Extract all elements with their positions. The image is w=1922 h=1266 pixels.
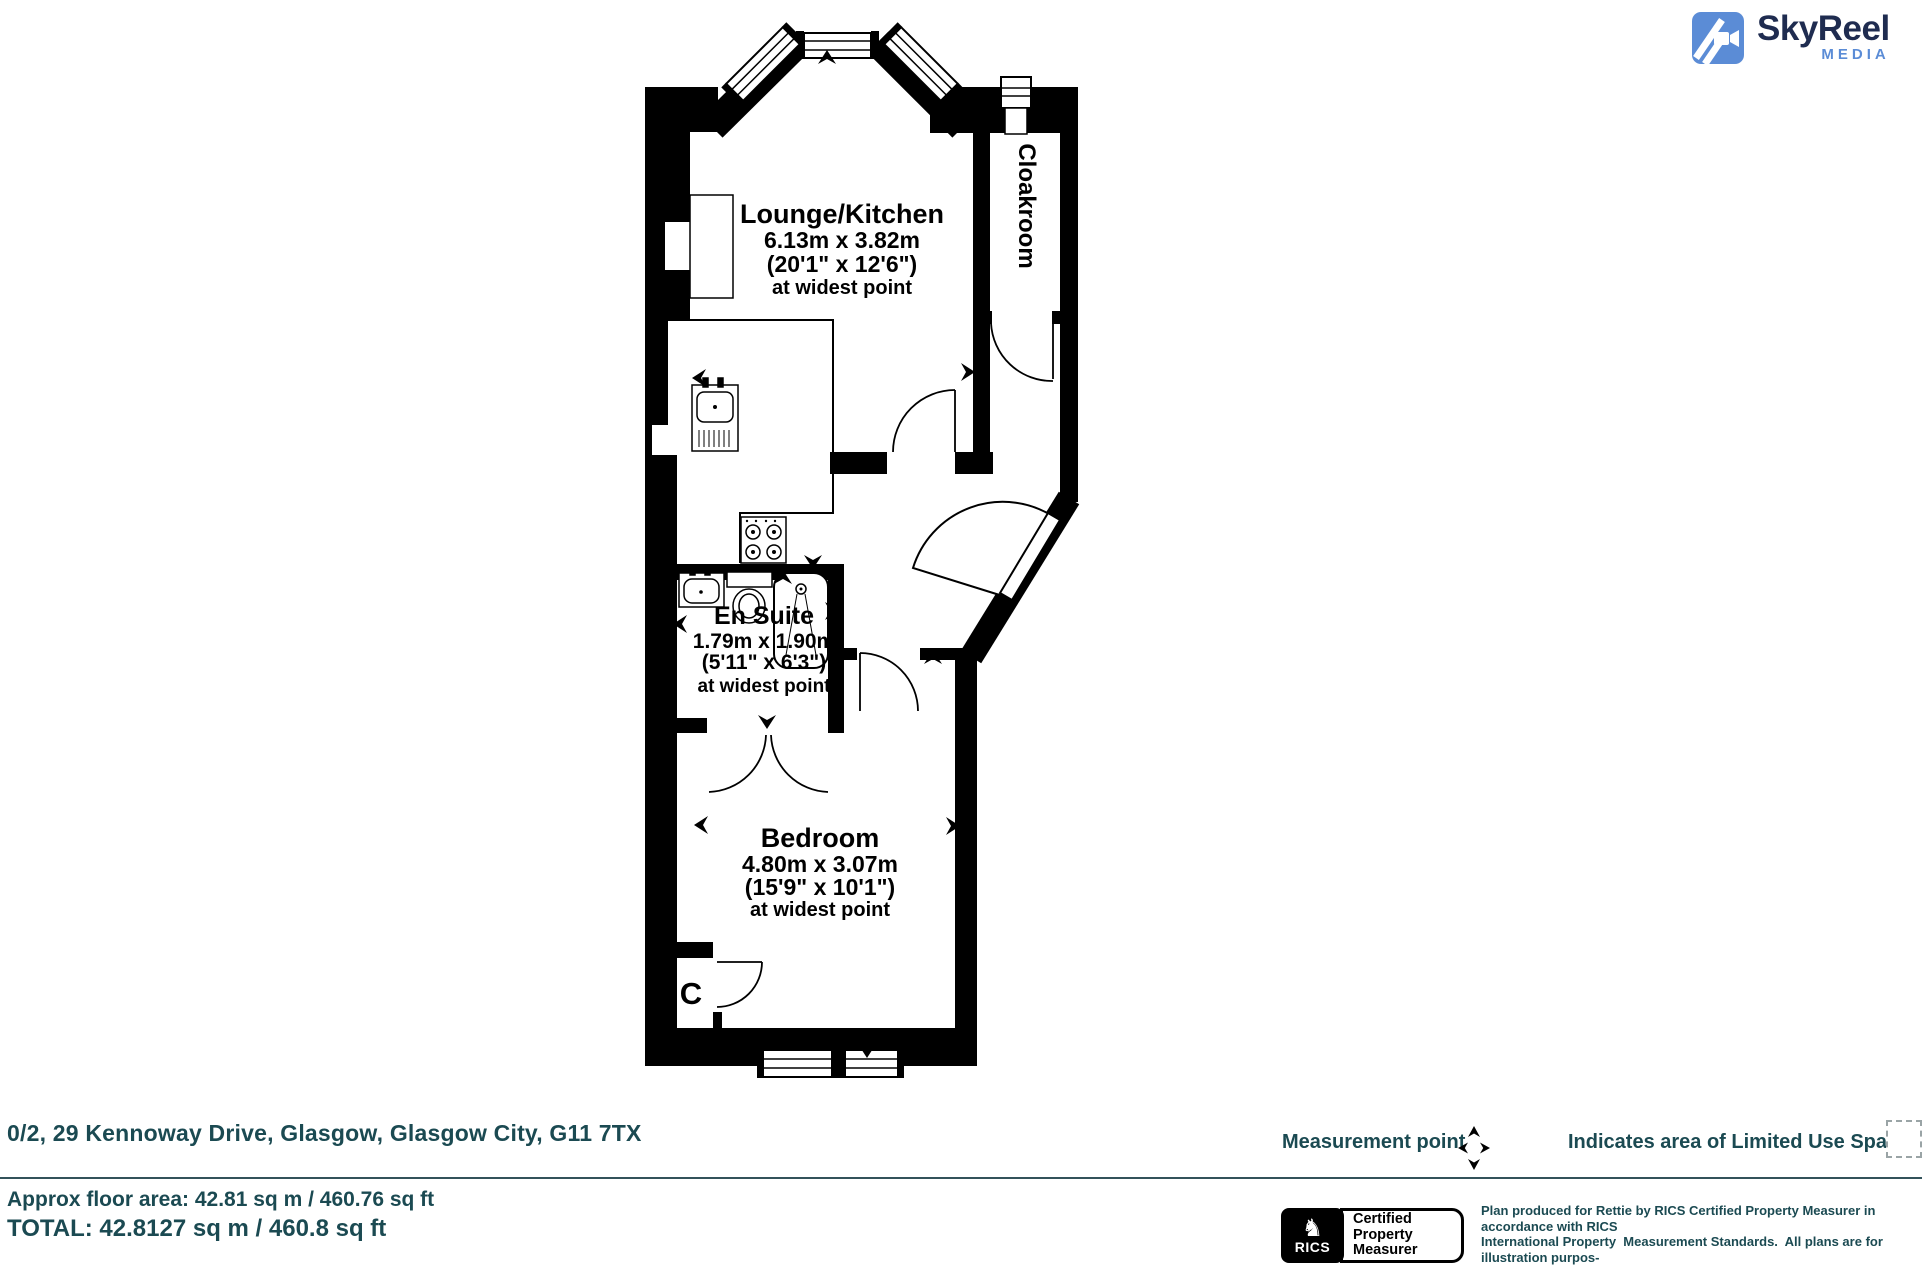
floorplan-page: Lounge/Kitchen 6.13m x 3.82m (20'1" x 12… xyxy=(0,0,1922,1266)
rics-brand: RICS xyxy=(1295,1239,1330,1255)
bedroom-window-left xyxy=(757,1047,845,1078)
door-lounge-hall xyxy=(893,390,955,452)
cert-line: Measurer xyxy=(1353,1243,1461,1259)
four-way-arrow-icon xyxy=(1452,1124,1496,1172)
lounge-furniture xyxy=(690,195,733,298)
bedroom-note: at widest point xyxy=(750,899,890,921)
ensuite-metric: 1.79m x 1.90m xyxy=(693,630,835,653)
cert-line: Property xyxy=(1353,1228,1461,1244)
door-cloakroom xyxy=(991,321,1053,381)
cloakroom-window xyxy=(1001,77,1031,134)
approx-floor-area: Approx floor area: 42.81 sq m / 460.76 s… xyxy=(7,1188,434,1212)
rics-logo: ♞ RICS xyxy=(1281,1208,1344,1263)
bedroom-title: Bedroom xyxy=(761,823,880,853)
bedroom-window-right xyxy=(845,1047,904,1078)
total-floor-area: TOTAL: 42.8127 sq m / 460.8 sq ft xyxy=(7,1215,386,1243)
ensuite-imperial: (5'11" x 6'3") xyxy=(702,651,826,674)
cert-line: Certified xyxy=(1353,1212,1461,1228)
property-address: 0/2, 29 Kennoway Drive, Glasgow, Glasgow… xyxy=(7,1120,642,1147)
ensuite-note: at widest point xyxy=(698,676,832,697)
disclaimer-line: International Property Measurement Stand… xyxy=(1481,1234,1922,1265)
arrow-down-icon xyxy=(758,715,776,729)
rics-lion-icon: ♞ xyxy=(1302,1217,1324,1239)
lounge-kitchen-imperial: (20'1" x 12'6") xyxy=(767,251,917,277)
limited-use-label: Indicates area of Limited Use Space xyxy=(1568,1131,1909,1154)
bay-window-top xyxy=(796,31,879,59)
skyreel-logo: SkyReel MEDIA xyxy=(1692,12,1890,64)
skyreel-tagline: MEDIA xyxy=(1757,47,1890,63)
cupboard-label: C xyxy=(680,976,702,1011)
arrow-right-icon xyxy=(961,363,975,381)
ensuite-title: En Suite xyxy=(714,602,814,630)
skyreel-camera-icon xyxy=(1692,12,1744,64)
skyreel-name: SkyReel xyxy=(1757,12,1890,46)
limited-use-swatch xyxy=(1886,1120,1922,1158)
bedroom-imperial: (15'9" x 10'1") xyxy=(745,874,895,900)
lounge-kitchen-title: Lounge/Kitchen xyxy=(740,199,944,229)
rics-certified-box: Certified Property Measurer xyxy=(1340,1208,1464,1263)
wall-recess xyxy=(665,222,690,270)
measurement-point-label: Measurement point xyxy=(1282,1131,1465,1154)
lounge-kitchen-note: at widest point xyxy=(772,277,912,299)
hob-icon xyxy=(741,517,786,563)
divider-line xyxy=(0,1177,1922,1179)
door-entrance xyxy=(913,502,1060,600)
floor-plan: Lounge/Kitchen 6.13m x 3.82m (20'1" x 12… xyxy=(0,0,1922,1110)
kitchen-sink-icon xyxy=(692,378,738,451)
disclaimer: Plan produced for Rettie by RICS Certifi… xyxy=(1481,1203,1922,1266)
arrow-left-icon xyxy=(694,816,708,834)
disclaimer-line: Plan produced for Rettie by RICS Certifi… xyxy=(1481,1203,1922,1234)
door-ensuite-double xyxy=(709,735,828,792)
door-bedroom xyxy=(860,653,918,711)
cloakroom-title: Cloakroom xyxy=(1013,143,1040,268)
lounge-kitchen-metric: 6.13m x 3.82m xyxy=(764,227,920,253)
door-cupboard xyxy=(717,962,762,1007)
